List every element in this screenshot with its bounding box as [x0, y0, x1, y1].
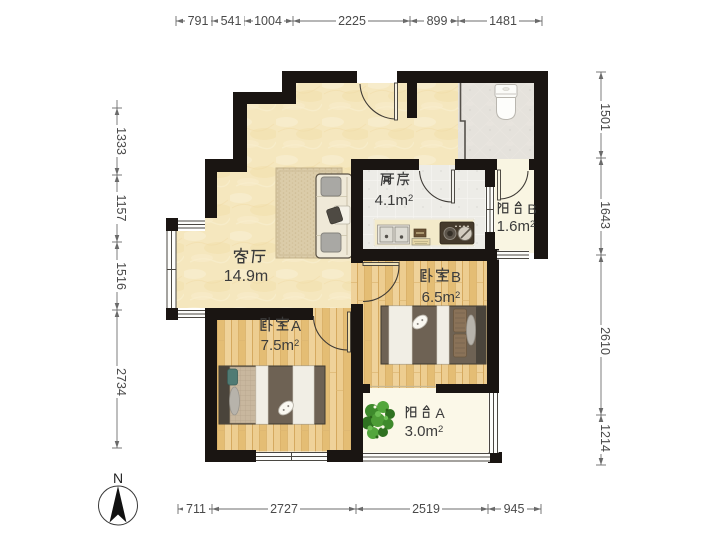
svg-text:3.0m2: 3.0m2 — [405, 423, 444, 440]
svg-text:791: 791 — [188, 14, 209, 28]
svg-text:1004: 1004 — [254, 14, 282, 28]
svg-text:1157: 1157 — [114, 195, 128, 222]
svg-text:A: A — [435, 405, 445, 421]
svg-text:A: A — [291, 318, 301, 335]
svg-text:7.5m2: 7.5m2 — [261, 337, 300, 354]
svg-text:1643: 1643 — [598, 201, 612, 229]
svg-text:B: B — [527, 201, 536, 217]
svg-text:2727: 2727 — [270, 502, 298, 516]
svg-text:1333: 1333 — [114, 127, 128, 155]
svg-text:2734: 2734 — [114, 368, 128, 396]
svg-text:B: B — [451, 269, 461, 286]
svg-text:2519: 2519 — [412, 502, 440, 516]
svg-text:14.9m: 14.9m — [224, 268, 268, 285]
svg-text:1501: 1501 — [598, 103, 612, 131]
svg-text:4.1m2: 4.1m2 — [375, 192, 414, 209]
svg-text:N: N — [113, 470, 123, 486]
svg-text:2610: 2610 — [598, 327, 612, 355]
svg-text:1481: 1481 — [489, 14, 517, 28]
svg-text:899: 899 — [427, 14, 448, 28]
svg-text:1214: 1214 — [598, 424, 612, 452]
svg-text:541: 541 — [221, 14, 242, 28]
svg-text:6.5m2: 6.5m2 — [422, 289, 461, 306]
svg-text:1.6m2: 1.6m2 — [497, 218, 536, 235]
svg-text:2225: 2225 — [338, 14, 366, 28]
svg-text:1516: 1516 — [114, 262, 128, 290]
svg-text:945: 945 — [504, 502, 525, 516]
svg-text:711: 711 — [186, 502, 206, 516]
